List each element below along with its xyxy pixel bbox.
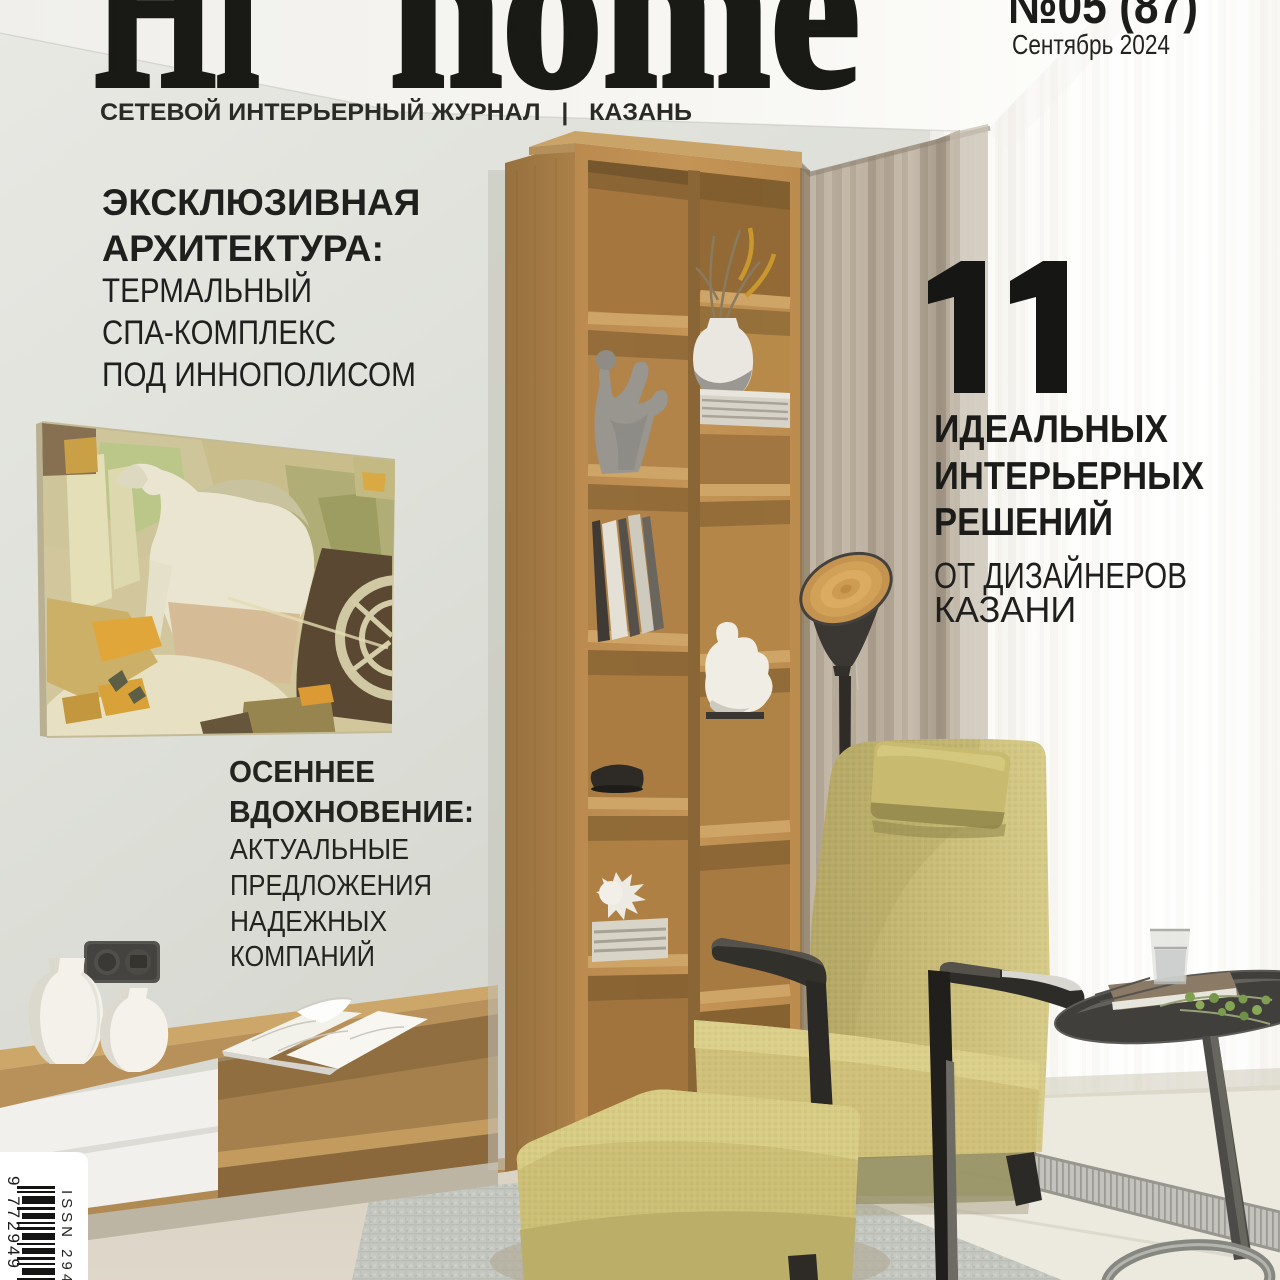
svg-text:ПРЕДЛОЖЕНИЯ: ПРЕДЛОЖЕНИЯ — [230, 870, 432, 902]
svg-text:ИДЕАЛЬНЫХ: ИДЕАЛЬНЫХ — [934, 408, 1168, 451]
svg-text:ISSN 294: ISSN 294 — [58, 1190, 75, 1280]
svg-text:КОМПАНИЙ: КОМПАНИЙ — [230, 939, 375, 973]
svg-text:Сентябрь 2024: Сентябрь 2024 — [1012, 29, 1170, 60]
svg-text:СЕТЕВОЙ ИНТЕРЬЕРНЫЙ ЖУРНАЛ |: СЕТЕВОЙ ИНТЕРЬЕРНЫЙ ЖУРНАЛ | КАЗАНЬ — [100, 98, 692, 126]
svg-text:ПОД ИННОПОЛИСОМ: ПОД ИННОПОЛИСОМ — [102, 356, 416, 394]
svg-text:ОСЕННЕЕ: ОСЕННЕЕ — [229, 754, 375, 789]
svg-text:ЭКСКЛЮЗИВНАЯ: ЭКСКЛЮЗИВНАЯ — [102, 182, 420, 223]
svg-text:ВДОХНОВЕНИЕ:: ВДОХНОВЕНИЕ: — [229, 794, 474, 829]
svg-text:ИНТЕРЬЕРНЫХ: ИНТЕРЬЕРНЫХ — [934, 455, 1204, 498]
svg-text:АРХИТЕКТУРА:: АРХИТЕКТУРА: — [102, 228, 384, 269]
svg-text:СПА-КОМПЛЕКС: СПА-КОМПЛЕКС — [102, 314, 336, 352]
svg-text:ТЕРМАЛЬНЫЙ: ТЕРМАЛЬНЫЙ — [102, 272, 312, 310]
svg-text:АКТУАЛЬНЫЕ: АКТУАЛЬНЫЕ — [230, 834, 409, 866]
svg-text:РЕШЕНИЙ: РЕШЕНИЙ — [934, 499, 1113, 544]
svg-text:КАЗАНИ: КАЗАНИ — [934, 589, 1076, 630]
svg-text:НАДЕЖНЫХ: НАДЕЖНЫХ — [230, 906, 387, 938]
